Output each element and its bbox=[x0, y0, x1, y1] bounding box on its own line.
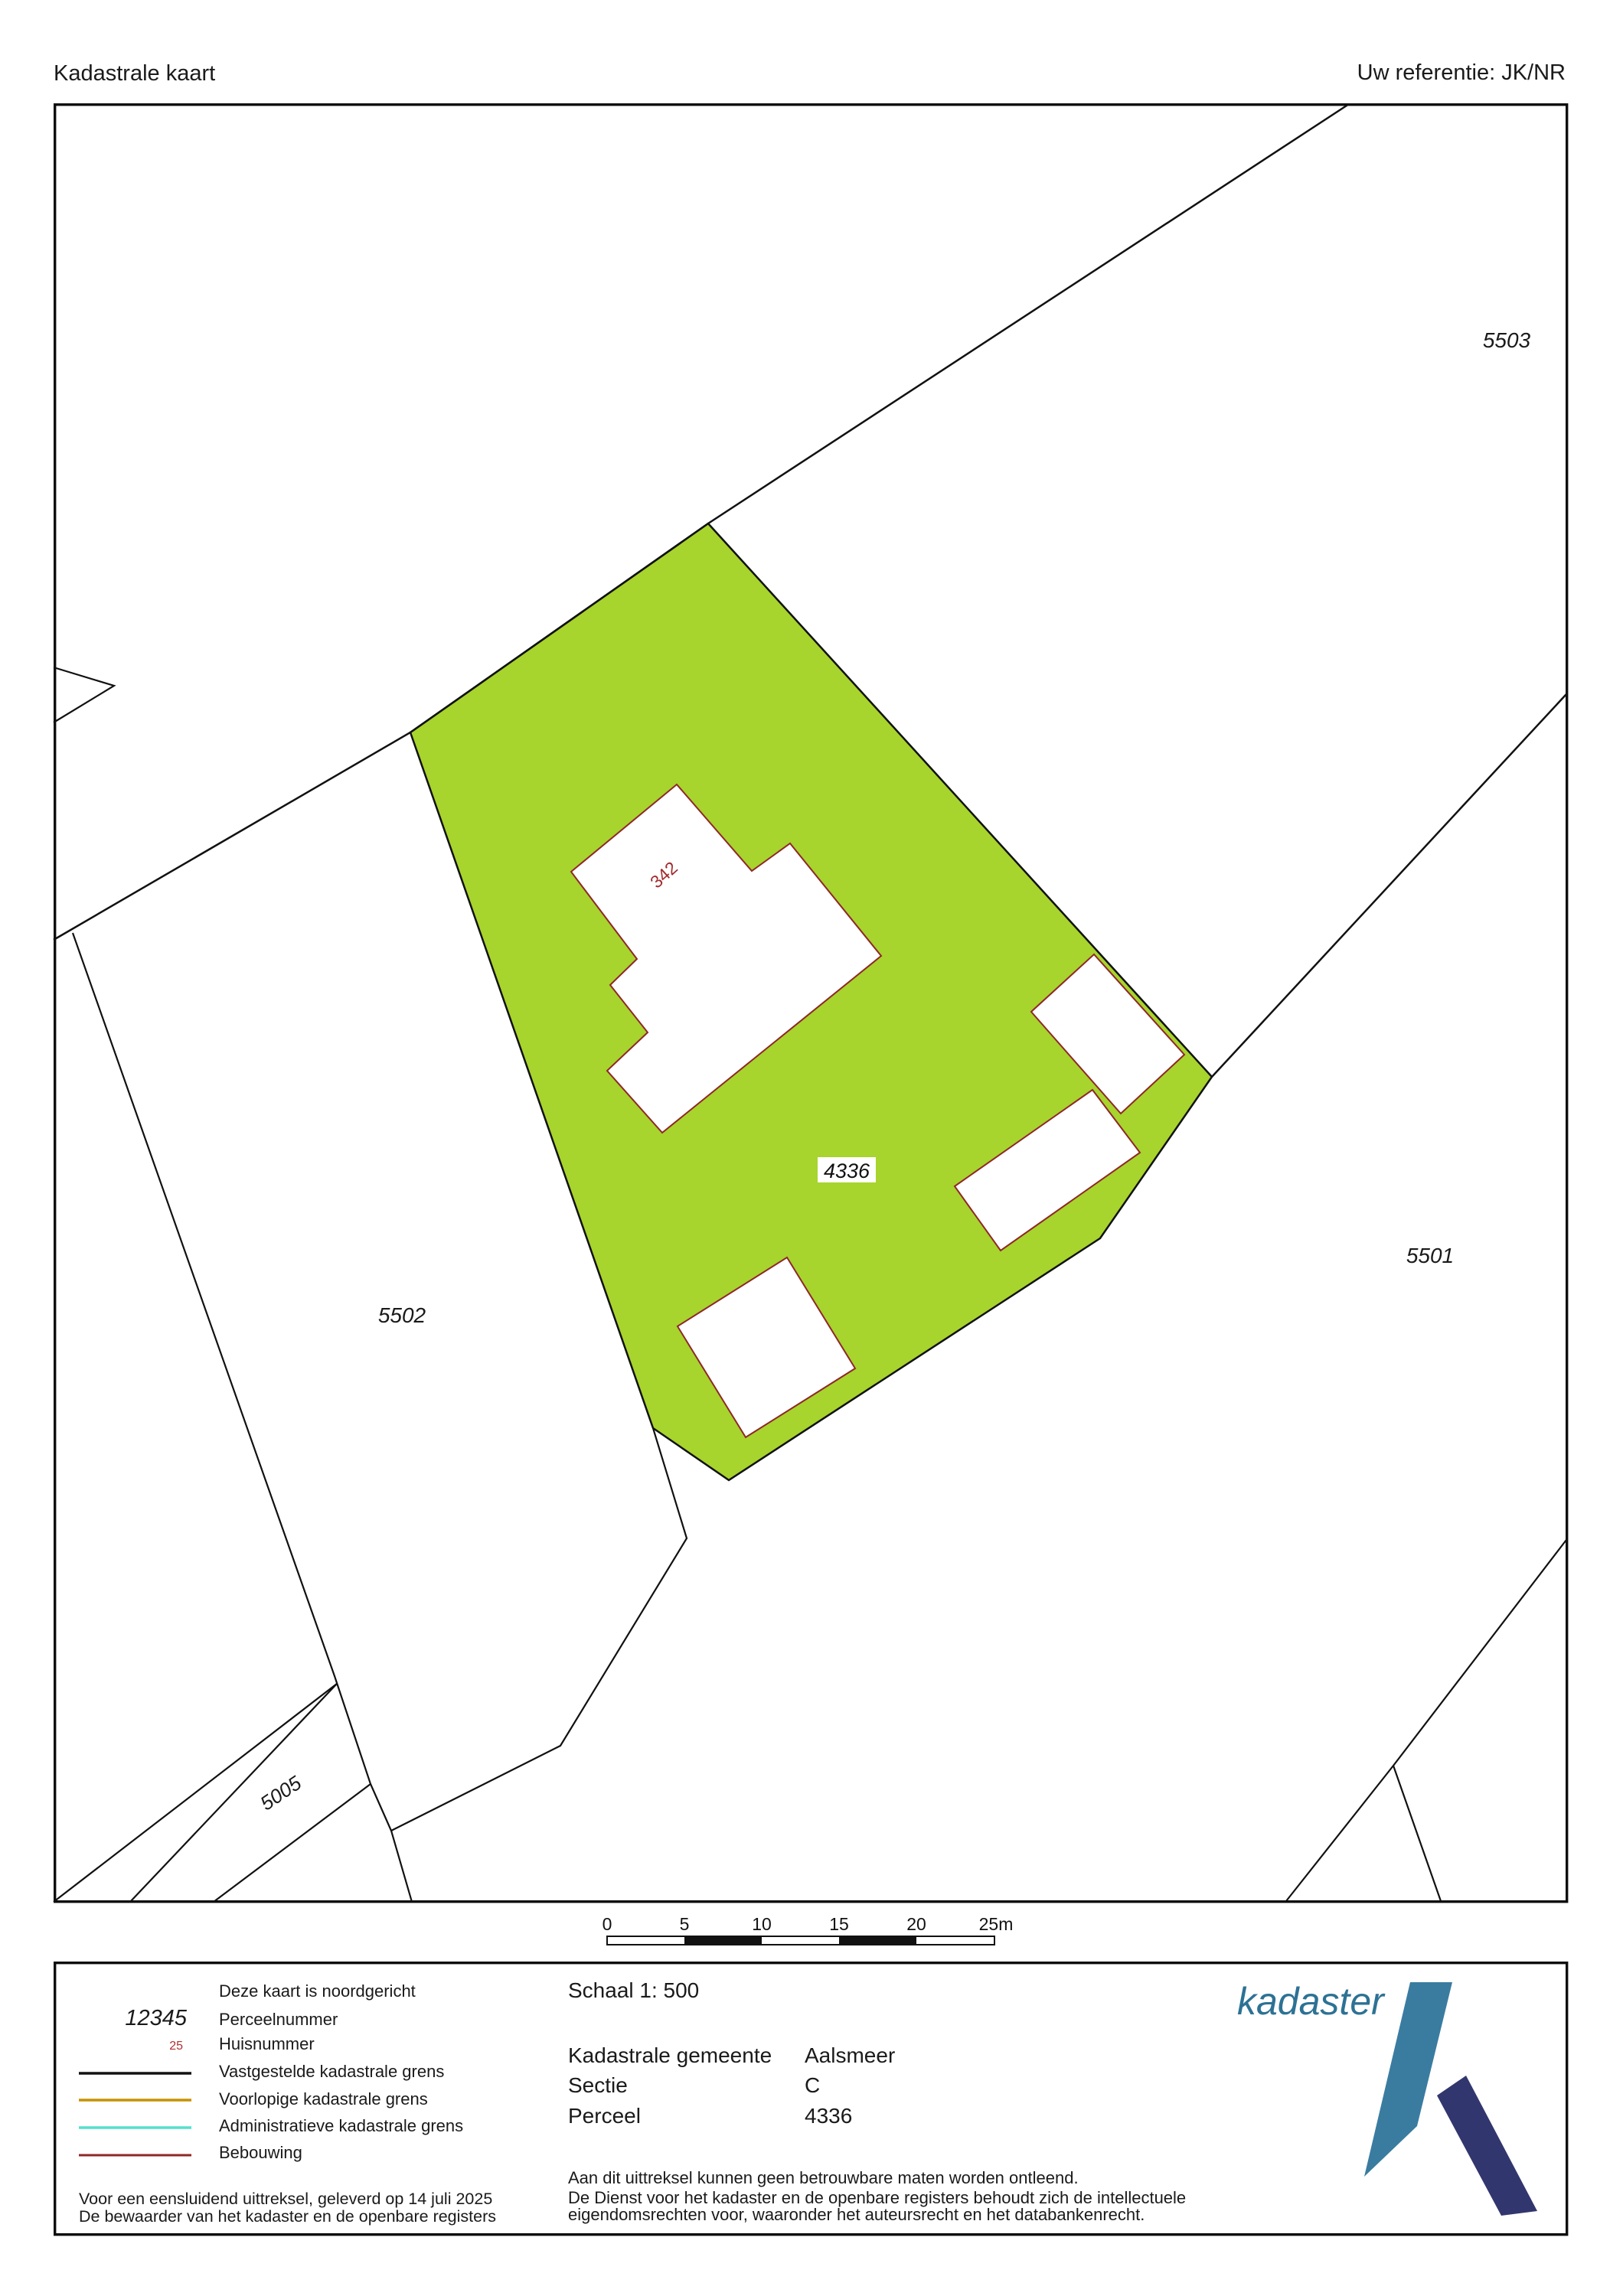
svg-text:12345: 12345 bbox=[125, 2006, 188, 2030]
svg-text:5502: 5502 bbox=[378, 1303, 426, 1327]
svg-text:Schaal 1: 500: Schaal 1: 500 bbox=[568, 1978, 699, 2002]
svg-text:25m: 25m bbox=[979, 1914, 1014, 1934]
svg-text:Administratieve kadastrale gre: Administratieve kadastrale grens bbox=[219, 2116, 463, 2135]
svg-text:Voorlopige kadastrale grens: Voorlopige kadastrale grens bbox=[219, 2089, 428, 2108]
svg-text:25: 25 bbox=[169, 2040, 183, 2053]
svg-text:Bebouwing: Bebouwing bbox=[219, 2143, 302, 2162]
svg-text:Vastgestelde kadastrale grens: Vastgestelde kadastrale grens bbox=[219, 2062, 444, 2081]
svg-text:Perceel: Perceel bbox=[568, 2104, 641, 2128]
svg-text:Aalsmeer: Aalsmeer bbox=[805, 2043, 895, 2067]
svg-text:kadaster: kadaster bbox=[1237, 1980, 1386, 2023]
svg-text:5501: 5501 bbox=[1406, 1244, 1454, 1267]
svg-text:Kadastrale kaart: Kadastrale kaart bbox=[54, 61, 215, 86]
svg-text:10: 10 bbox=[752, 1914, 772, 1934]
svg-text:0: 0 bbox=[603, 1914, 612, 1934]
svg-text:C: C bbox=[805, 2073, 820, 2097]
svg-text:Uw referentie: JK/NR: Uw referentie: JK/NR bbox=[1357, 60, 1566, 85]
svg-text:4336: 4336 bbox=[805, 2104, 852, 2128]
svg-text:5: 5 bbox=[680, 1914, 690, 1934]
svg-text:Kadastrale gemeente: Kadastrale gemeente bbox=[568, 2043, 772, 2067]
svg-text:Sectie: Sectie bbox=[568, 2073, 628, 2097]
svg-text:eigendomsrechten voor, waarond: eigendomsrechten voor, waaronder het aut… bbox=[568, 2205, 1145, 2224]
svg-text:15: 15 bbox=[829, 1914, 849, 1934]
svg-text:Huisnummer: Huisnummer bbox=[219, 2034, 315, 2053]
svg-text:Perceelnummer: Perceelnummer bbox=[219, 2010, 338, 2029]
svg-text:5503: 5503 bbox=[1483, 328, 1531, 352]
svg-text:Deze kaart is noordgericht: Deze kaart is noordgericht bbox=[219, 1981, 416, 2001]
svg-text:Voor een eensluidend uittrekse: Voor een eensluidend uittreksel, gelever… bbox=[79, 2190, 492, 2208]
svg-text:Aan dit uittreksel kunnen geen: Aan dit uittreksel kunnen geen betrouwba… bbox=[568, 2168, 1079, 2187]
svg-text:De bewaarder van het kadaster: De bewaarder van het kadaster en de open… bbox=[79, 2207, 496, 2226]
svg-text:4336: 4336 bbox=[824, 1159, 870, 1182]
svg-text:20: 20 bbox=[906, 1914, 926, 1934]
